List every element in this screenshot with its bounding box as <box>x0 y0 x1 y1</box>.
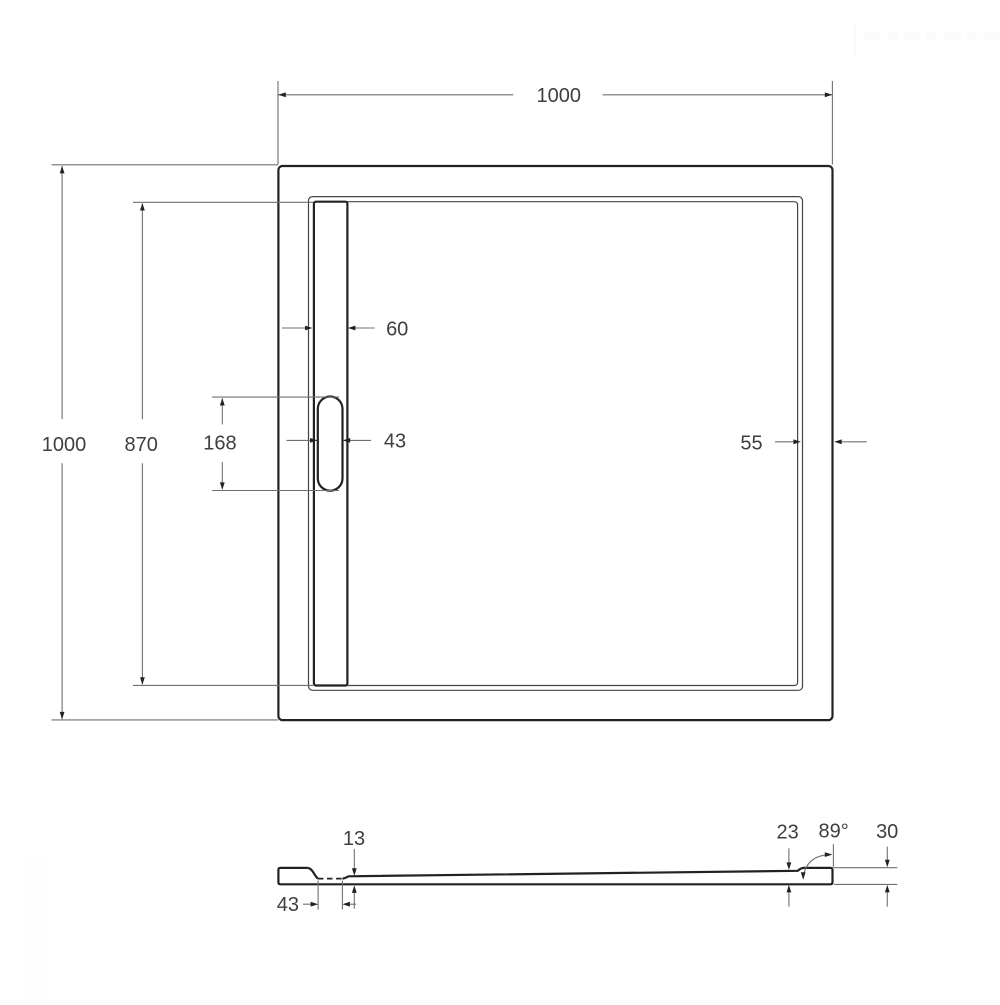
svg-text:13: 13 <box>343 828 365 850</box>
svg-text:1000: 1000 <box>537 85 582 107</box>
svg-text:1000: 1000 <box>42 434 87 456</box>
svg-text:60: 60 <box>386 318 408 340</box>
svg-text:23: 23 <box>776 822 798 844</box>
svg-text:168: 168 <box>203 433 236 455</box>
svg-text:870: 870 <box>125 434 158 456</box>
svg-text:30: 30 <box>876 821 898 843</box>
svg-text:89°: 89° <box>818 821 848 843</box>
svg-text:43: 43 <box>384 431 406 453</box>
svg-text:43: 43 <box>277 894 299 916</box>
svg-text:55: 55 <box>740 432 762 454</box>
